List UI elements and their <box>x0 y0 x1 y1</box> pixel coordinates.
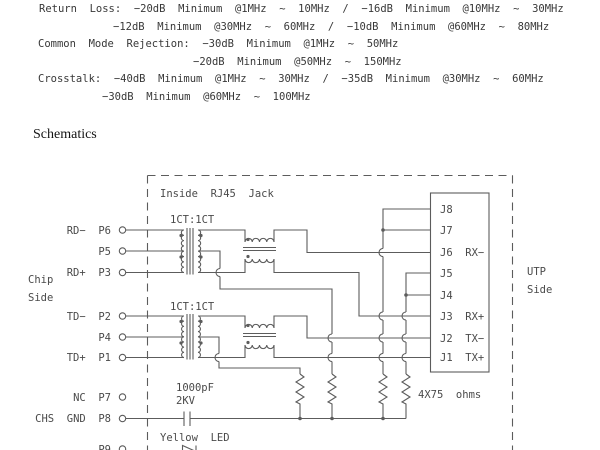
datasheet-page: Return Loss: −20dB Minimum @1MHz ~ 10MHz… <box>0 0 600 450</box>
utp-side-label: Side <box>527 284 552 296</box>
resistor-network <box>296 374 410 419</box>
inside-rj45-label: Inside RJ45 Jack <box>160 188 274 200</box>
wire-j5-j4 <box>402 273 431 374</box>
utp-side-label: UTP <box>527 266 546 278</box>
capacitor-icon <box>184 412 190 427</box>
capacitor-value-label: 1000pF <box>176 382 214 394</box>
jack-pin-label-j5: J5 <box>440 268 453 280</box>
capacitor-voltage-label: 2KV <box>176 395 195 407</box>
chip-pin-label-p3: RD+ P3 <box>0 267 111 279</box>
wire-j8-j7 <box>379 209 431 374</box>
chip-pin-label-p5: P5 <box>0 246 111 258</box>
chip-pin-label-p6: RD− P6 <box>0 225 111 237</box>
chip-side-label: Side <box>28 292 53 304</box>
chip-pin-label-p4: P4 <box>0 332 111 344</box>
wire-rx-centertap <box>198 251 332 374</box>
wire-tx-plus <box>274 345 431 358</box>
wire-tx-minus <box>274 316 431 338</box>
jack-pin-label-j8: J8 <box>440 204 453 216</box>
led-diode-icon <box>183 446 197 450</box>
jack-pin-label-j2: J2 TX− <box>440 333 484 345</box>
ground-rail <box>190 417 406 421</box>
jack-pin-label-j7: J7 <box>440 225 453 237</box>
jack-pin-label-j6: J6 RX− <box>440 247 484 259</box>
rj45-pin-box <box>431 193 490 372</box>
transformer-ratio-label: 1CT:1CT <box>170 214 214 226</box>
wire-rx-minus <box>274 230 431 253</box>
jack-pin-label-j4: J4 <box>440 290 453 302</box>
transformer-ratio-label: 1CT:1CT <box>170 301 214 313</box>
led-label: Yellow LED <box>160 432 230 444</box>
chip-pin-label-p1: TD+ P1 <box>0 352 111 364</box>
jack-pin-label-j3: J3 RX+ <box>440 311 484 323</box>
jack-pin-label-j1: J1 TX+ <box>440 352 484 364</box>
pin-terminal-circles <box>119 227 125 450</box>
chip-pin-label-p9: P9 <box>0 444 111 450</box>
chip-pin-label-p7: NC P7 <box>0 392 111 404</box>
chip-pin-label-p2: TD− P2 <box>0 311 111 323</box>
chip-pin-label-p8: CHS GND P8 <box>0 413 111 425</box>
wire-rx-plus <box>274 259 431 316</box>
resistor-value-label: 4X75 ohms <box>418 389 481 401</box>
